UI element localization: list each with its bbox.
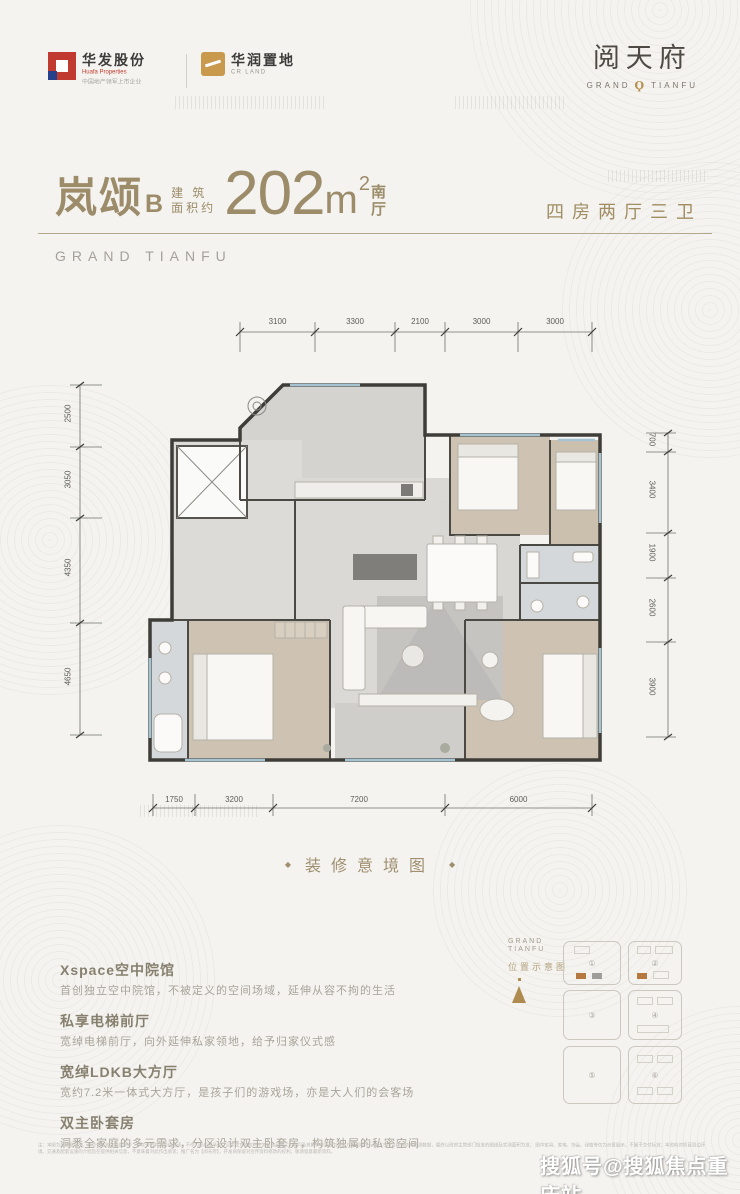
site-block-number: ③ xyxy=(588,1011,595,1020)
dim-label-bottom: 6000 xyxy=(445,795,592,804)
feature-desc: 首创独立空中院馆，不被定义的空间场域，延伸从容不拘的生活 xyxy=(60,985,460,998)
dim-label-top: 3100 xyxy=(240,317,315,326)
site-block-number: ⑤ xyxy=(588,1071,595,1080)
dim-label-left: 3050 xyxy=(64,460,73,500)
sitemap-brand: GRAND TIANFU xyxy=(508,938,545,954)
dim-label-bottom: 3200 xyxy=(195,795,273,804)
dim-label-right: 3900 xyxy=(648,667,657,707)
floor-plan xyxy=(145,358,605,768)
feature-title: 宽绰LDKB大方厅 xyxy=(60,1062,460,1082)
dim-label-top: 3000 xyxy=(518,317,592,326)
site-block: ④ xyxy=(628,990,682,1040)
dim-label-bottom: 7200 xyxy=(273,795,445,804)
poster-page: 华发股份 Huafa Properties 中国地产领军上市企业 华润置地 CR… xyxy=(0,0,740,1194)
watermark: 搜狐号@搜狐焦点重庆站 xyxy=(540,1150,740,1194)
dim-label-right: 700 xyxy=(648,420,657,460)
disclaimer-line1: 注：本图为装修意境图，非交付标准，仅供参考；本宣传资料为要约邀请，不作为要约或承… xyxy=(38,1143,534,1148)
sitemap-brand-line2: TIANFU xyxy=(508,946,545,954)
plan-caption-text: 装修意境图 xyxy=(305,852,435,876)
feature-item: 私享电梯前厅 宽绰电梯前厅，向外延伸私家领地，给予归家仪式感 xyxy=(60,1011,460,1049)
feature-desc: 宽约7.2米一体式大方厅，是孩子们的游戏场，亦是大人们的会客场 xyxy=(60,1087,460,1100)
feature-list: Xspace空中院馆 首创独立空中院馆，不被定义的空间场域，延伸从容不拘的生活 … xyxy=(60,960,460,1164)
dim-label-top: 2100 xyxy=(395,317,445,326)
site-block-number: ② xyxy=(651,959,658,968)
site-block: ① xyxy=(563,941,621,985)
dim-label-top: 3000 xyxy=(445,317,518,326)
site-block: ③ xyxy=(563,990,621,1040)
feature-item: Xspace空中院馆 首创独立空中院馆，不被定义的空间场域，延伸从容不拘的生活 xyxy=(60,960,460,998)
feature-title: 双主卧套房 xyxy=(60,1113,460,1133)
plan-caption: ◆ 装修意境图 ◆ xyxy=(0,852,740,876)
dim-label-top: 3300 xyxy=(315,317,395,326)
dim-label-right: 3400 xyxy=(648,470,657,510)
feature-desc: 宽绰电梯前厅，向外延伸私家领地，给予归家仪式感 xyxy=(60,1036,460,1049)
site-location-map: GRAND TIANFU 位置示意图 ① ② ③ ④ ⑤ xyxy=(490,936,710,1121)
dim-label-left: 4650 xyxy=(64,657,73,697)
diamond-icon: ◆ xyxy=(449,860,455,869)
feature-item: 宽绰LDKB大方厅 宽约7.2米一体式大方厅，是孩子们的游戏场，亦是大人们的会客… xyxy=(60,1062,460,1100)
site-block-number: ⑥ xyxy=(651,1071,658,1080)
dim-label-right: 2600 xyxy=(648,588,657,628)
site-block-number: ① xyxy=(588,959,595,968)
site-block: ⑤ xyxy=(563,1046,621,1104)
dim-label-left: 4350 xyxy=(64,548,73,588)
feature-title: 私享电梯前厅 xyxy=(60,1011,460,1031)
sitemap-brand-line1: GRAND xyxy=(508,938,545,946)
site-block: ⑥ xyxy=(628,1046,682,1104)
dim-label-right: 1900 xyxy=(648,533,657,573)
site-block-number: ④ xyxy=(651,1011,658,1020)
compass-icon xyxy=(512,986,526,1003)
feature-title: Xspace空中院馆 xyxy=(60,960,460,980)
dim-label-left: 2500 xyxy=(64,394,73,434)
diamond-icon: ◆ xyxy=(285,860,291,869)
dim-label-bottom: 1750 xyxy=(153,795,195,804)
site-block: ② xyxy=(628,941,682,985)
floor-plan-drawing xyxy=(145,358,605,768)
sitemap-caption: 位置示意图 xyxy=(508,960,568,973)
